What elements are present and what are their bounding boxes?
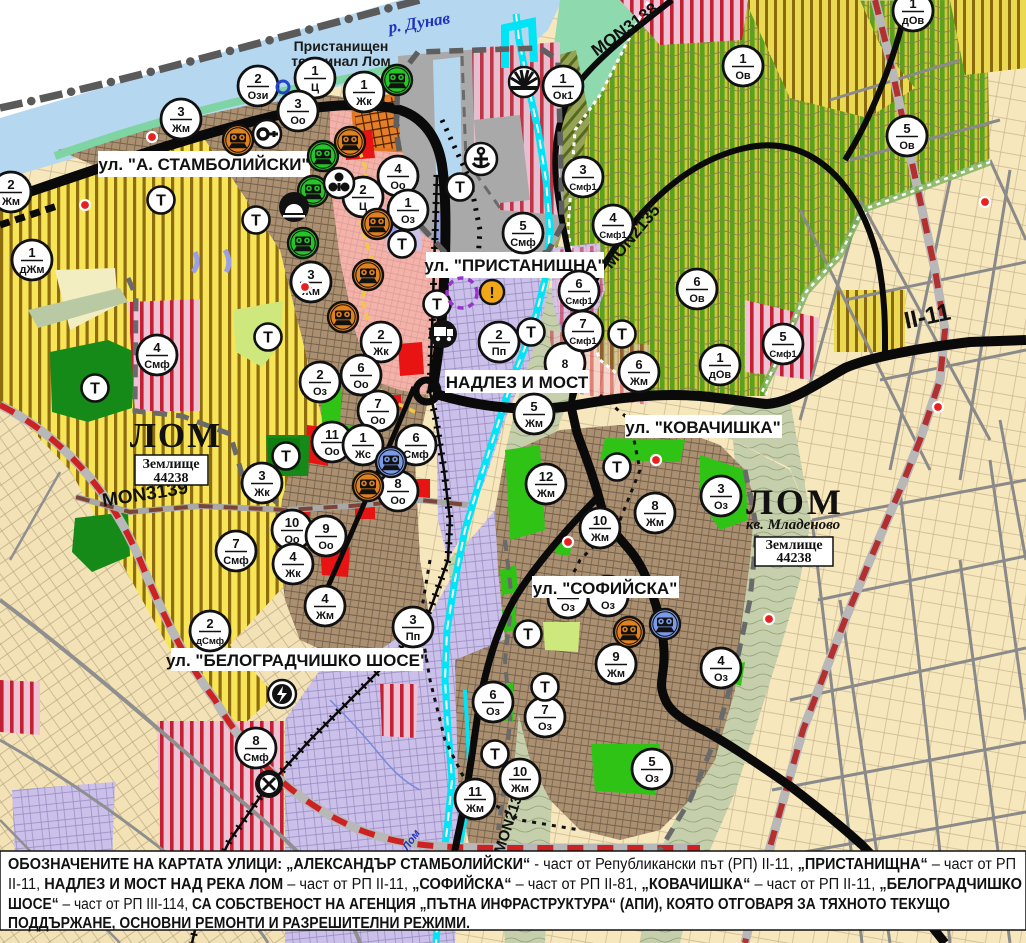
svg-text:44238: 44238 (154, 471, 189, 486)
svg-text:Оз: Оз (401, 214, 416, 226)
svg-text:Т: Т (432, 297, 442, 314)
svg-text:9: 9 (612, 649, 619, 664)
svg-text:7: 7 (541, 702, 548, 717)
svg-text:Т: Т (617, 327, 627, 344)
svg-text:3: 3 (409, 612, 416, 627)
svg-text:2: 2 (316, 367, 323, 382)
svg-text:Т: Т (523, 627, 533, 644)
svg-text:6: 6 (412, 430, 419, 445)
svg-text:Оз: Оз (486, 706, 501, 718)
svg-text:Пп: Пп (406, 631, 421, 643)
svg-text:дСмф: дСмф (196, 636, 224, 647)
svg-text:44238: 44238 (777, 551, 812, 566)
svg-text:Жм: Жм (1, 196, 20, 208)
svg-text:2: 2 (495, 327, 502, 342)
svg-text:Смф: Смф (403, 449, 429, 461)
svg-text:1: 1 (739, 51, 746, 66)
svg-text:3: 3 (579, 162, 586, 177)
svg-text:Жм: Жм (629, 376, 648, 388)
svg-text:Жк: Жк (372, 346, 389, 358)
svg-text:6: 6 (635, 357, 642, 372)
svg-text:Ов: Ов (899, 140, 915, 152)
svg-text:Жм: Жм (536, 488, 555, 500)
svg-text:Землище: Землище (142, 457, 199, 472)
svg-text:Оо: Оо (353, 379, 369, 391)
svg-text:ЛОМ: ЛОМ (130, 416, 222, 455)
svg-text:Оз: Оз (561, 602, 576, 614)
svg-text:Жм: Жм (171, 123, 190, 135)
svg-text:2: 2 (7, 177, 14, 192)
svg-text:6: 6 (575, 276, 582, 291)
svg-text:Т: Т (490, 747, 500, 764)
svg-text:4: 4 (321, 591, 329, 606)
svg-text:Жм: Жм (590, 532, 609, 544)
svg-text:Оз: Оз (601, 600, 616, 612)
svg-text:Смф1: Смф1 (565, 296, 593, 307)
svg-text:Жм: Жм (315, 610, 334, 622)
svg-text:Оо: Оо (290, 115, 306, 127)
svg-text:1: 1 (360, 77, 367, 92)
svg-text:Жм: Жм (465, 803, 484, 815)
svg-text:Жм: Жм (606, 668, 625, 680)
svg-text:Жм: Жм (524, 418, 543, 430)
svg-text:1: 1 (716, 350, 723, 365)
svg-text:Оз: Оз (538, 721, 553, 733)
svg-text:Ц: Ц (311, 82, 319, 94)
svg-text:5: 5 (648, 754, 655, 769)
svg-text:Смф: Смф (243, 752, 269, 764)
svg-text:6: 6 (357, 360, 364, 375)
svg-text:5: 5 (530, 399, 537, 414)
svg-text:Смф: Смф (144, 359, 170, 371)
svg-text:!: ! (489, 285, 494, 302)
svg-text:Оо: Оо (324, 446, 340, 458)
svg-text:Жс: Жс (354, 449, 371, 461)
svg-text:2: 2 (377, 327, 384, 342)
svg-text:5: 5 (519, 218, 526, 233)
svg-text:Ов: Ов (735, 70, 751, 82)
svg-text:Оо: Оо (390, 495, 406, 507)
svg-text:3: 3 (307, 267, 314, 282)
svg-text:1: 1 (28, 245, 35, 260)
svg-text:5: 5 (779, 329, 786, 344)
svg-text:Т: Т (455, 180, 465, 197)
svg-text:3: 3 (294, 96, 301, 111)
svg-text:Т: Т (540, 680, 550, 697)
svg-text:3: 3 (717, 481, 724, 496)
svg-text:Оо: Оо (318, 540, 334, 552)
svg-text:ОБОЗНАЧЕНИТЕ НА КАРТАТА УЛИЦИ:: ОБОЗНАЧЕНИТЕ НА КАРТАТА УЛИЦИ: „АЛЕКСАНД… (8, 855, 1016, 873)
svg-text:Жк: Жк (284, 568, 301, 580)
svg-text:7: 7 (579, 316, 586, 331)
svg-text:8: 8 (252, 733, 259, 748)
svg-text:Т: Т (281, 449, 291, 466)
svg-text:Смф1: Смф1 (569, 182, 597, 193)
svg-text:Пристанищен: Пристанищен (294, 38, 389, 54)
svg-text:Смф1: Смф1 (569, 336, 597, 347)
svg-text:4: 4 (394, 161, 402, 176)
svg-text:Оз: Оз (313, 386, 328, 398)
svg-text:Т: Т (156, 193, 166, 210)
svg-text:ШОСЕ“ – част от РП III-114, СА: ШОСЕ“ – част от РП III-114, СА СОБСТВЕНО… (8, 896, 950, 913)
svg-text:10: 10 (593, 513, 607, 528)
svg-text:дОв: дОв (902, 15, 925, 27)
svg-text:1: 1 (359, 430, 366, 445)
svg-text:Оз: Оз (714, 500, 729, 512)
svg-text:кв. Младеново: кв. Младеново (746, 517, 840, 533)
svg-text:3: 3 (258, 468, 265, 483)
svg-text:Ок1: Ок1 (553, 90, 573, 102)
svg-text:8: 8 (651, 498, 658, 513)
svg-text:Ози: Ози (248, 90, 269, 102)
svg-text:7: 7 (232, 536, 239, 551)
svg-text:12: 12 (539, 469, 553, 484)
svg-text:10: 10 (513, 764, 527, 779)
svg-text:7: 7 (374, 396, 381, 411)
svg-text:4: 4 (717, 653, 725, 668)
svg-text:1: 1 (559, 71, 566, 86)
svg-text:Оз: Оз (645, 773, 660, 785)
svg-text:6: 6 (489, 687, 496, 702)
svg-text:ул. "КОВАЧИШКА": ул. "КОВАЧИШКА" (625, 418, 781, 437)
svg-text:9: 9 (322, 521, 329, 536)
svg-text:4: 4 (289, 549, 297, 564)
svg-text:Оз: Оз (714, 672, 729, 684)
svg-text:Жк: Жк (253, 487, 270, 499)
svg-text:4: 4 (153, 340, 161, 355)
svg-text:Т: Т (90, 381, 100, 398)
svg-text:Т: Т (612, 460, 622, 477)
svg-text:2: 2 (359, 182, 366, 197)
svg-text:II-11, НАДЛЕЗ И МОСТ НАД РЕКА: II-11, НАДЛЕЗ И МОСТ НАД РЕКА ЛОМ – част… (8, 875, 1022, 893)
svg-text:3: 3 (177, 104, 184, 119)
svg-text:1: 1 (909, 0, 916, 11)
svg-text:Ц: Ц (359, 201, 367, 213)
svg-text:ул. "А. СТАМБОЛИЙСКИ": ул. "А. СТАМБОЛИЙСКИ" (98, 155, 309, 174)
svg-text:Ов: Ов (689, 293, 705, 305)
svg-text:11: 11 (468, 784, 482, 799)
svg-text:ул. "СОФИЙСКА": ул. "СОФИЙСКА" (533, 579, 678, 598)
svg-text:Смф: Смф (510, 237, 536, 249)
svg-text:ПОДДЪРЖАНЕ, ОСНОВНИ РЕМОНТИ И: ПОДДЪРЖАНЕ, ОСНОВНИ РЕМОНТИ И РАЗРЕШИТЕЛ… (8, 915, 470, 932)
svg-text:5: 5 (903, 121, 910, 136)
svg-text:10: 10 (285, 515, 299, 530)
svg-text:Жм: Жм (645, 517, 664, 529)
svg-text:дЖм: дЖм (19, 264, 44, 276)
svg-text:8: 8 (394, 476, 401, 491)
svg-text:ЛОМ: ЛОМ (746, 482, 844, 522)
svg-text:ул. "БЕЛОГРАДЧИШКО ШОСЕ": ул. "БЕЛОГРАДЧИШКО ШОСЕ" (166, 651, 428, 670)
svg-text:Т: Т (397, 237, 407, 254)
svg-text:2: 2 (206, 616, 213, 631)
svg-text:Жм: Жм (510, 783, 529, 795)
svg-text:Пп: Пп (492, 346, 507, 358)
svg-text:Т: Т (526, 325, 536, 342)
svg-text:Оо: Оо (370, 415, 386, 427)
svg-text:Смф1: Смф1 (769, 349, 797, 360)
svg-text:Смф1: Смф1 (599, 230, 627, 241)
svg-text:11: 11 (325, 427, 339, 442)
svg-text:8: 8 (562, 357, 569, 371)
svg-text:6: 6 (693, 274, 700, 289)
svg-text:1: 1 (404, 195, 411, 210)
svg-text:4: 4 (609, 210, 617, 225)
svg-text:НАДЛЕЗ И МОСТ: НАДЛЕЗ И МОСТ (446, 373, 589, 392)
svg-text:Т: Т (263, 330, 273, 347)
svg-text:2: 2 (254, 71, 261, 86)
svg-text:Жк: Жк (355, 96, 372, 108)
svg-text:Смф: Смф (223, 555, 249, 567)
svg-text:дОв: дОв (709, 369, 732, 381)
svg-text:Т: Т (251, 213, 261, 230)
svg-text:1: 1 (311, 63, 318, 78)
